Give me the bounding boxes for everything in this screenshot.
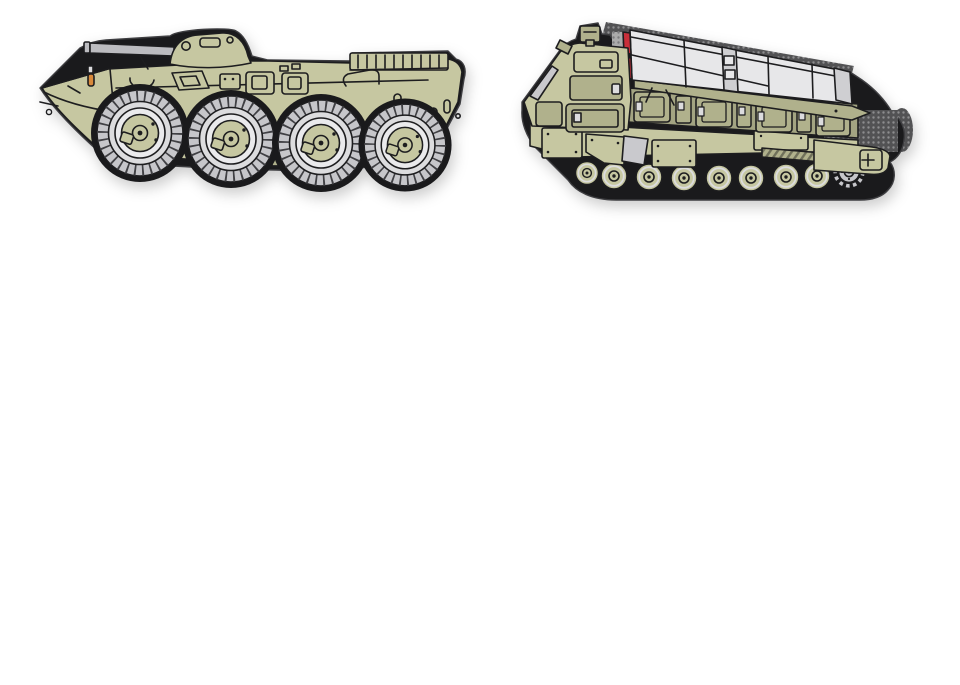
road-wheel	[706, 165, 732, 191]
road-wheel	[671, 165, 697, 191]
road-wheel	[576, 162, 599, 185]
grey-step-plate	[622, 136, 648, 165]
road-wheel	[773, 164, 799, 190]
road-wheel	[601, 163, 627, 189]
apc-patch-art	[34, 16, 478, 198]
apc-headlight	[88, 66, 94, 86]
apc-patch	[34, 16, 478, 198]
photo-canvas	[0, 0, 960, 685]
launcher-patch	[516, 10, 914, 217]
apc-wheel-2	[182, 90, 280, 188]
apc-wheel-3	[272, 94, 370, 192]
apc-engine-deck-rack	[350, 53, 448, 70]
road-wheel	[738, 165, 764, 191]
apc-wheel-1	[91, 84, 189, 182]
apc-wheel-4	[358, 98, 451, 191]
road-wheel	[636, 164, 662, 190]
launcher-patch-art	[516, 10, 914, 217]
